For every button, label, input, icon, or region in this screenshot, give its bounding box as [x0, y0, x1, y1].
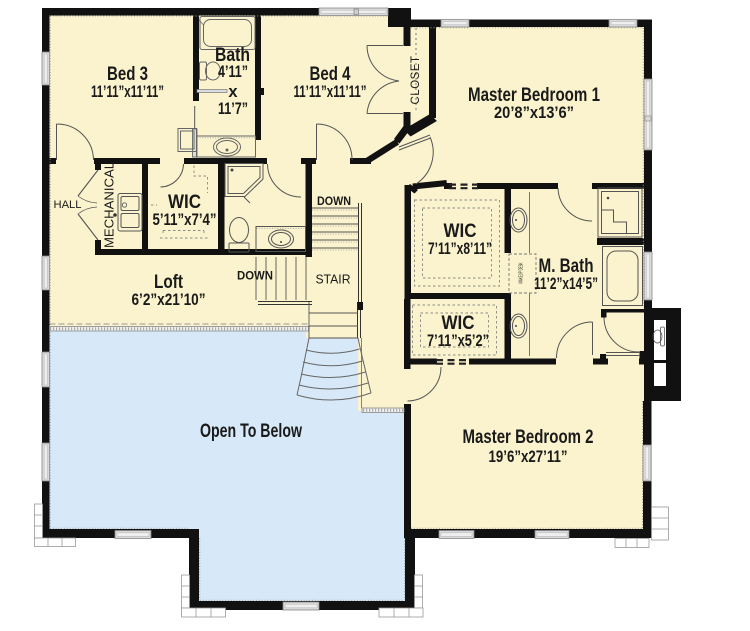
svg-text:DOWN: DOWN [237, 269, 273, 283]
svg-text:11’7”: 11’7” [218, 100, 248, 118]
svg-text:MECHANICAL: MECHANICAL [103, 162, 117, 248]
svg-text:Master Bedroom 1: Master Bedroom 1 [468, 85, 600, 106]
svg-text:7’11”x5’2”: 7’11”x5’2” [427, 332, 489, 350]
svg-text:4’11”: 4’11” [218, 63, 248, 81]
svg-text:x: x [228, 83, 238, 101]
svg-text:Master Bedroom 2: Master Bedroom 2 [463, 427, 594, 448]
svg-text:WIC: WIC [444, 221, 477, 242]
svg-text:11’11”x11’11”: 11’11”x11’11” [294, 83, 367, 101]
svg-text:M. Bath: M. Bath [539, 256, 594, 277]
svg-text:CLOSET: CLOSET [410, 56, 422, 105]
svg-text:Bed 4: Bed 4 [310, 64, 351, 85]
svg-text:WIC: WIC [442, 313, 475, 334]
svg-text:Loft: Loft [154, 272, 184, 293]
svg-text:20’8”x13’6”: 20’8”x13’6” [494, 104, 574, 122]
svg-text:Bed 3: Bed 3 [107, 64, 148, 85]
svg-text:DOWN: DOWN [317, 194, 351, 208]
svg-text:11’11”x11’11”: 11’11”x11’11” [91, 83, 164, 101]
svg-text:19’6”x27’11”: 19’6”x27’11” [489, 448, 568, 466]
svg-text:7’11”x8’11”: 7’11”x8’11” [428, 240, 492, 258]
svg-text:HALL: HALL [54, 199, 82, 211]
svg-text:6’2”x21’10”: 6’2”x21’10” [132, 291, 206, 309]
svg-text:Open To Below: Open To Below [200, 421, 302, 442]
svg-text:5’11”x7’4”: 5’11”x7’4” [153, 211, 217, 229]
svg-text:MAKEUP DESK: MAKEUP DESK [519, 262, 525, 283]
svg-text:WIC: WIC [168, 192, 201, 213]
svg-text:11’2”x14’5”: 11’2”x14’5” [534, 275, 598, 293]
svg-text:STAIR: STAIR [316, 273, 351, 287]
